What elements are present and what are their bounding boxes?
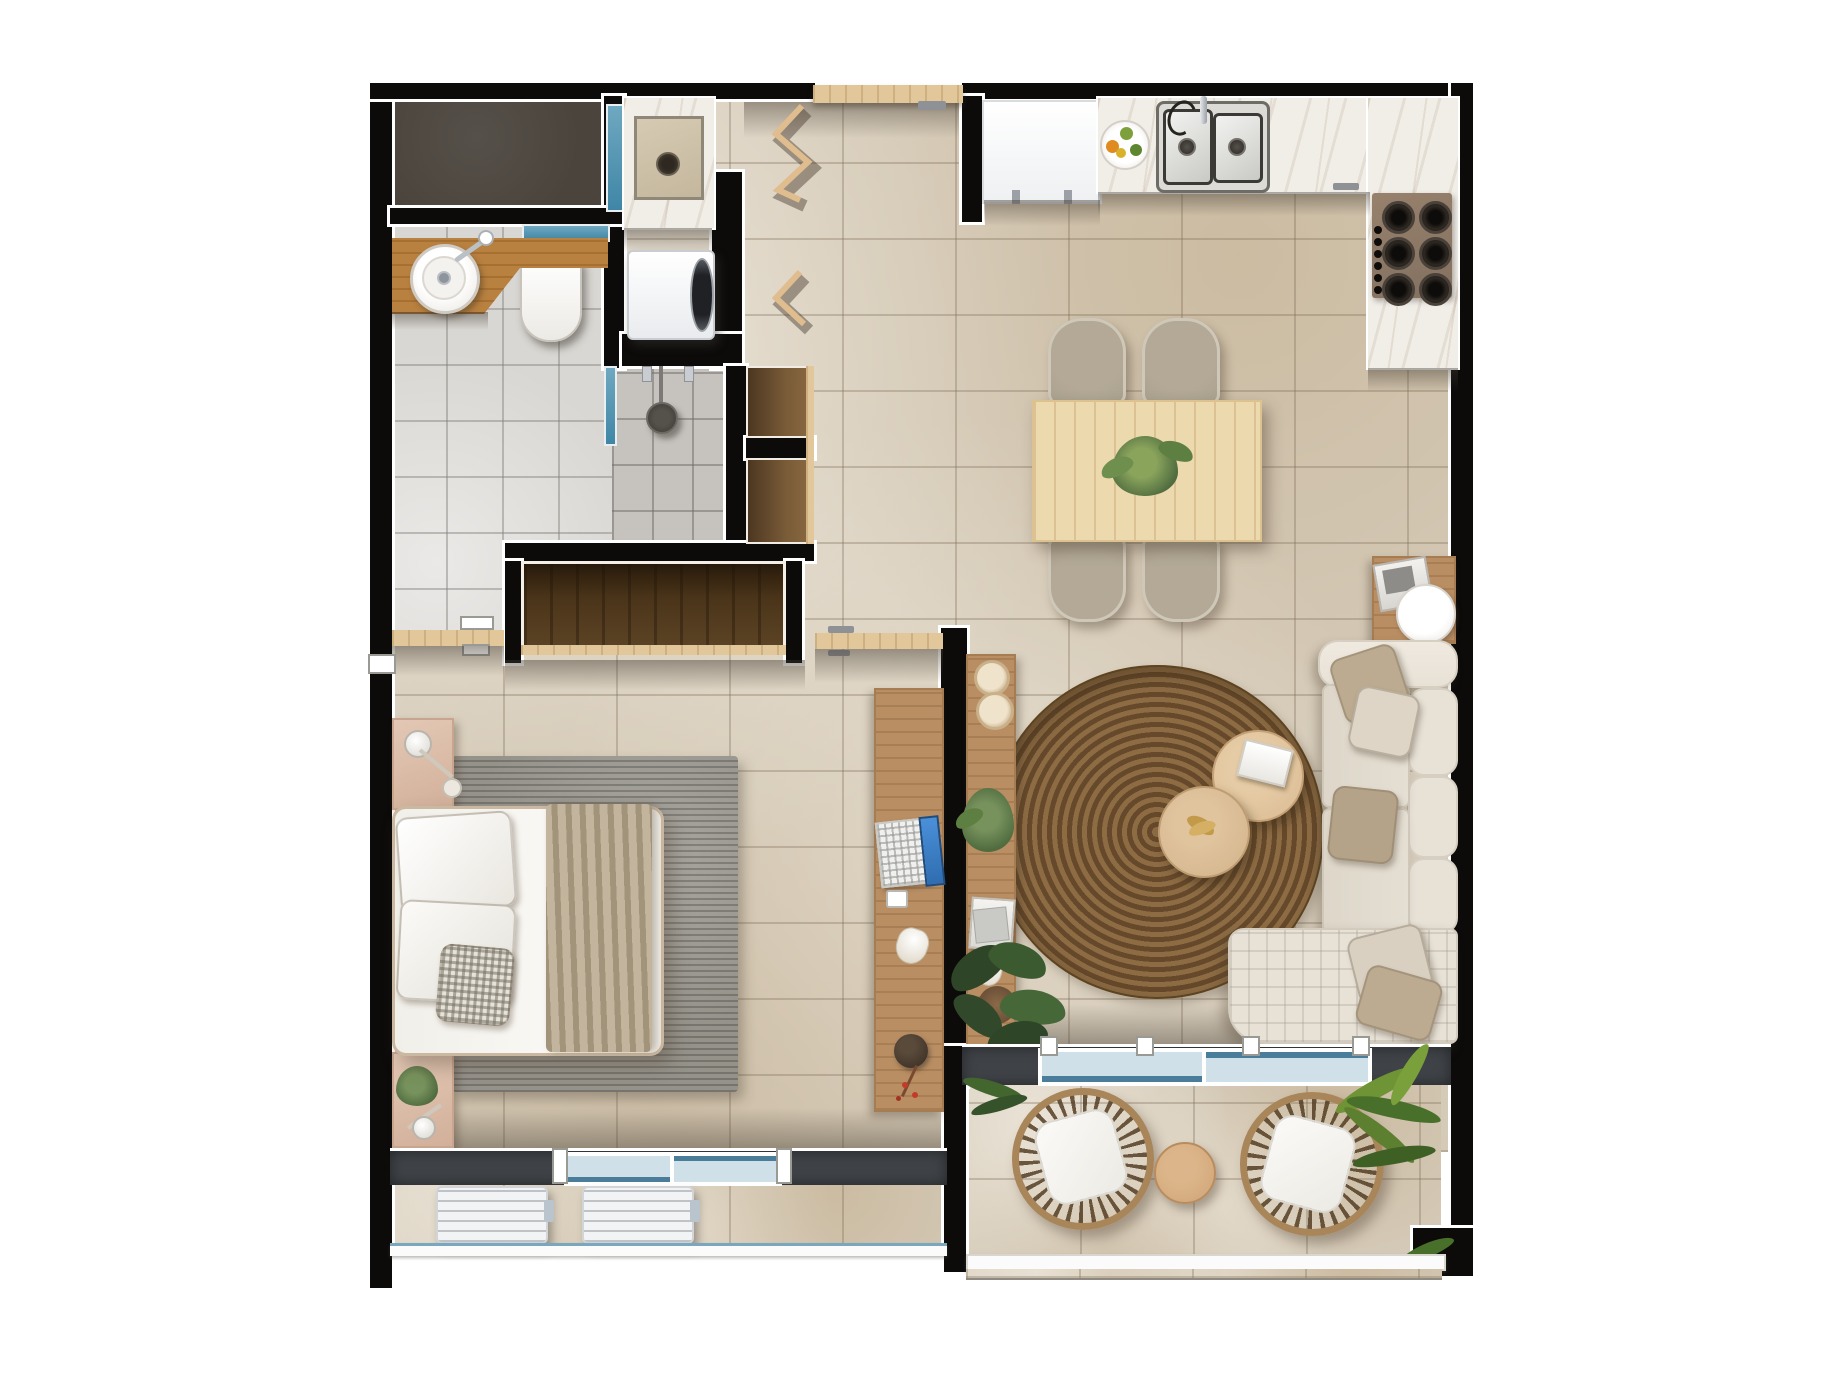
shower-floor (612, 366, 730, 558)
kitchen-sink-drain-icon-2 (1228, 138, 1246, 156)
burner-icon-1 (1382, 201, 1415, 234)
wall-tick (368, 654, 396, 674)
candle-icon-2 (976, 692, 1014, 730)
desk-bowl (894, 1034, 928, 1068)
console-book-gray (972, 906, 1009, 943)
sofa-pillow-2 (1346, 684, 1422, 760)
bedroom-door (815, 633, 943, 649)
berry-icon-1 (902, 1082, 908, 1088)
wall-top-right (962, 83, 1473, 99)
wall-entry-stub (962, 96, 982, 222)
kitchen-counter-top-shadow (1098, 192, 1370, 216)
side-table-round-tray (1396, 584, 1456, 644)
wardrobe-shadow (505, 660, 805, 690)
bathroom-counter-shadow (392, 312, 488, 330)
balcony-glass-panel-1 (1038, 1048, 1208, 1086)
bathroom-door-jamb (460, 616, 494, 630)
cooktop-knob-icon-2 (1374, 238, 1382, 246)
balcony-glass-panel-2 (1202, 1048, 1372, 1086)
window-jamb-left (552, 1148, 568, 1184)
wall-wardrobe-right (786, 561, 802, 663)
washing-machine-door-icon (690, 258, 714, 332)
wall-wardrobe-top (505, 543, 814, 561)
wall-niche-edge (806, 366, 814, 544)
ac-unit-2 (582, 1186, 694, 1244)
bathroom-door-shadow (392, 646, 504, 676)
ac-pipe-icon-2 (690, 1200, 700, 1222)
wall-niche-divider (746, 438, 814, 458)
cooktop-knob-icon-4 (1374, 262, 1382, 270)
wall-shower-right (726, 366, 746, 558)
dining-chair-bottom-left (1048, 534, 1126, 622)
wall-niche-upper (746, 366, 814, 438)
shower-glass-panel (604, 366, 617, 446)
cooktop-knob-icon-1 (1374, 226, 1382, 234)
fruit-green-icon-2 (1130, 144, 1142, 156)
sofa-back-cushion-2 (1408, 776, 1458, 858)
bed-pillow-checkered (435, 943, 516, 1027)
bedroom-sill-shadow (390, 1108, 946, 1148)
bedroom-window-panel-1 (564, 1152, 676, 1186)
balcony-door-bracket-3 (1242, 1036, 1260, 1056)
wall-wardrobe-left (505, 561, 521, 663)
closet-floor (390, 98, 606, 210)
wall-left (370, 83, 392, 1288)
accordion-door-icon (764, 96, 824, 336)
nightstand-plant (396, 1066, 438, 1106)
ac-unit-1 (436, 1186, 548, 1244)
shower-valve-icon-2 (684, 366, 694, 382)
balcony-door-bracket-2 (1136, 1036, 1154, 1056)
window-jamb-right (776, 1148, 792, 1184)
kitchen-faucet-icon (1200, 96, 1207, 124)
dining-chair-bottom-right (1142, 534, 1220, 622)
fridge-shadow (984, 200, 1100, 226)
fridge (982, 100, 1102, 204)
closet-glass-door (606, 104, 626, 212)
burner-icon-4 (1419, 237, 1452, 270)
dining-chair-top-right (1142, 318, 1220, 406)
berry-icon-2 (912, 1092, 918, 1098)
wardrobe-grain (524, 564, 783, 648)
cooktop-knob-icon-5 (1374, 274, 1382, 282)
bedroom-door-handle-icon (828, 626, 854, 633)
balcony-table (1154, 1142, 1216, 1204)
floor-plan (0, 0, 1840, 1385)
wall-niche-lower (746, 458, 814, 544)
wall-top-left (370, 83, 815, 99)
berry-icon-3 (896, 1096, 901, 1101)
cooktop-knob-icon-3 (1374, 250, 1382, 258)
balcony-door-bracket-4 (1352, 1036, 1370, 1056)
desk-phone (886, 890, 908, 908)
bathroom-faucet-cap-icon (478, 230, 494, 246)
fruit-green-icon (1120, 127, 1133, 140)
ac-pipe-icon (544, 1200, 554, 1222)
cooktop-knob-icon-6 (1374, 286, 1382, 294)
fruit-yellow-icon (1116, 148, 1126, 158)
entry-door-handle (918, 101, 946, 110)
shower-head-icon (646, 402, 678, 434)
kitchen-sink-drain-icon (1178, 138, 1196, 156)
balcony-railing-ledge (966, 1269, 1442, 1280)
burner-icon-3 (1382, 237, 1415, 270)
bathroom-sink-drain-icon (437, 271, 451, 285)
shower-valve-icon (642, 366, 652, 382)
bedroom-window-panel-2 (670, 1152, 782, 1186)
toilet (520, 256, 582, 342)
burner-icon-6 (1419, 273, 1452, 306)
bedroom-door-shadow (815, 649, 943, 683)
balcony-door-bracket-1 (1040, 1036, 1058, 1056)
kitchen-counter-right-shadow (1368, 368, 1458, 392)
nightstand-top-lamp-shade-icon (442, 778, 462, 798)
bed-throw-blanket (546, 804, 652, 1052)
dining-chair-top-left (1048, 318, 1126, 406)
sofa-back-cushion-3 (1408, 858, 1458, 934)
laundry-counter-shadow (624, 228, 712, 252)
burner-icon-2 (1419, 201, 1452, 234)
candle-icon (974, 660, 1010, 696)
kitchen-cabinet-handle-icon (1333, 183, 1359, 190)
wardrobe-front-lip (521, 645, 786, 655)
ledge-railing (390, 1243, 947, 1256)
sofa-pillow-3 (1326, 785, 1399, 865)
nightstand-bottom-lamp-icon (412, 1116, 436, 1140)
wall-closet-bottom (390, 208, 622, 224)
burner-icon-5 (1382, 273, 1415, 306)
bed-pillow-1 (395, 810, 517, 914)
laundry-sink-drain-icon (656, 152, 680, 176)
